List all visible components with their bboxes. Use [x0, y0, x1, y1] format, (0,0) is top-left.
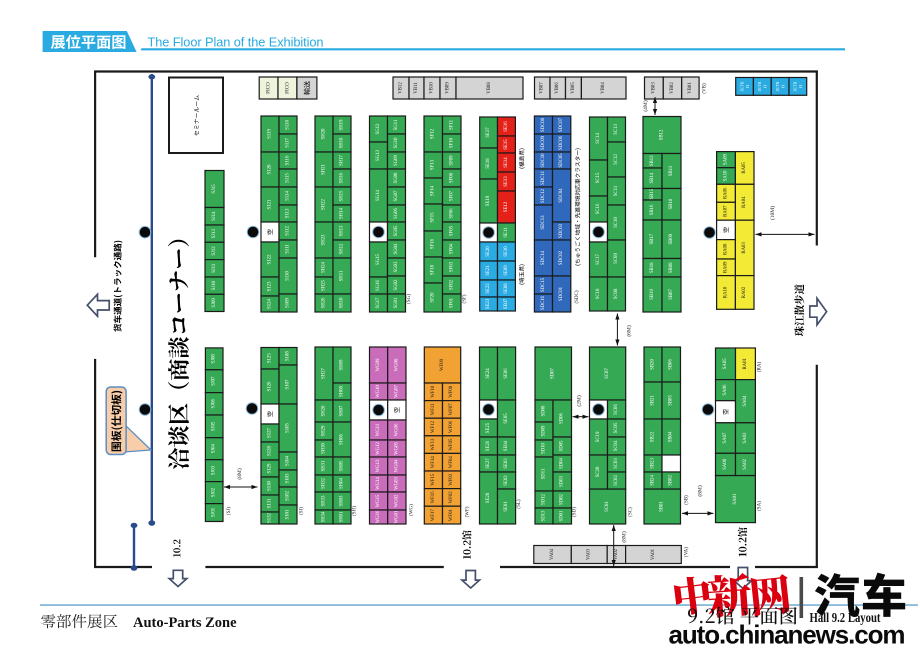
svg-text:VB04: VB04: [601, 82, 606, 94]
svg-text:SF15: SF15: [431, 212, 436, 223]
svg-text:SH29: SH29: [322, 425, 327, 437]
svg-text:VB06: VB06: [555, 82, 560, 94]
svg-text:WF04: WF04: [449, 456, 454, 469]
svg-text:SE12: SE12: [504, 201, 509, 212]
svg-text:SG01: SG01: [394, 297, 399, 309]
svg-text:SH15: SH15: [340, 190, 345, 202]
svg-text:SE20: SE20: [486, 246, 491, 257]
svg-text:SH20: SH20: [322, 128, 327, 140]
svg-text:SH05: SH05: [340, 460, 345, 472]
svg-text:SH31: SH31: [322, 460, 327, 472]
svg-text:RA05: RA05: [742, 162, 747, 174]
svg-text:SDC12: SDC12: [541, 188, 546, 203]
svg-text:S116: S116: [286, 155, 291, 165]
svg-text:(VA): (VA): [685, 547, 690, 557]
svg-text:(8M): (8M): [236, 468, 243, 479]
svg-text:S117: S117: [286, 138, 291, 148]
svg-text:SH21: SH21: [322, 163, 327, 175]
svg-text:SE11: SE11: [504, 227, 509, 238]
svg-text:SF02: SF02: [449, 279, 454, 290]
svg-text:WG13: WG13: [376, 459, 381, 472]
svg-text:SG13: SG13: [376, 149, 381, 161]
svg-text:WF03: WF03: [449, 473, 454, 486]
svg-text:SF13: SF13: [431, 159, 436, 170]
svg-text:Auto-Parts Zone: Auto-Parts Zone: [133, 615, 237, 631]
svg-text:SD01: SD01: [560, 510, 565, 522]
svg-text:SH24: SH24: [322, 261, 327, 273]
svg-text:WG05: WG05: [394, 442, 399, 455]
svg-text:SJ06: SJ06: [212, 399, 217, 409]
svg-text:WF15: WF15: [431, 473, 436, 486]
svg-text:(SDC): (SDC): [575, 290, 580, 303]
svg-text:VB07: VB07: [540, 82, 545, 94]
svg-text:SE09: SE09: [504, 265, 509, 276]
svg-text:SD03: SD03: [560, 475, 565, 487]
svg-text:S108: S108: [286, 351, 291, 361]
svg-text:SE06: SE06: [504, 368, 509, 379]
svg-text:SB17: SB17: [650, 233, 655, 244]
svg-text:SG15: SG15: [376, 253, 381, 265]
svg-text:(SG): (SG): [407, 294, 412, 304]
svg-text:JETR: JETR: [775, 81, 780, 91]
svg-text:S131: S131: [268, 498, 273, 508]
svg-text:WF01: WF01: [449, 509, 454, 522]
svg-text:SD02: SD02: [560, 493, 565, 505]
svg-text:S113: S113: [286, 208, 291, 218]
svg-text:SB15: SB15: [650, 188, 655, 199]
svg-text:WG15: WG15: [376, 494, 381, 507]
svg-text:SB10: SB10: [669, 198, 674, 209]
svg-text:SE28: SE28: [486, 492, 491, 503]
svg-text:S112: S112: [286, 226, 291, 236]
svg-text:(SL): (SL): [517, 499, 522, 509]
svg-text:SJ03: SJ03: [212, 465, 217, 475]
svg-text:SC17: SC17: [596, 254, 601, 265]
svg-text:SE27: SE27: [486, 458, 491, 469]
svg-text:SH27: SH27: [322, 367, 327, 379]
svg-text:SG11: SG11: [394, 119, 399, 130]
svg-text:SC06: SC06: [614, 404, 619, 415]
svg-text:SH26: SH26: [322, 297, 327, 309]
svg-text:S123: S123: [268, 281, 273, 291]
svg-text:SJ14: SJ14: [212, 211, 217, 221]
svg-text:SC01: SC01: [605, 501, 610, 512]
svg-text:VB02: VB02: [670, 82, 675, 94]
svg-text:VB03: VB03: [651, 82, 656, 94]
svg-text:WG01: WG01: [394, 510, 399, 523]
svg-text:SE05: SE05: [504, 413, 509, 424]
svg-text:SJ07: SJ07: [212, 376, 217, 386]
svg-text:SH32: SH32: [322, 477, 327, 489]
svg-text:S132: S132: [268, 512, 273, 522]
svg-text:VA04: VA04: [550, 548, 555, 560]
svg-text:WF14: WF14: [431, 456, 436, 469]
svg-text:SF04: SF04: [449, 243, 454, 254]
svg-text:SE08: SE08: [504, 283, 509, 294]
svg-text:SA07: SA07: [723, 432, 728, 444]
svg-text:SG14: SG14: [376, 189, 381, 201]
svg-text:SF11: SF11: [449, 119, 454, 130]
svg-text:SG06: SG06: [394, 207, 399, 219]
svg-text:VA03: VA03: [587, 548, 592, 560]
svg-text:SB14: SB14: [650, 172, 655, 183]
svg-text:S129: S129: [268, 463, 273, 473]
svg-text:S130: S130: [268, 480, 273, 490]
svg-text:SE21: SE21: [486, 265, 491, 276]
svg-text:SDC01: SDC01: [559, 286, 564, 301]
svg-text:SE02: SE02: [504, 475, 509, 486]
svg-text:SH30: SH30: [322, 442, 327, 454]
svg-text:VB10: VB10: [430, 82, 435, 94]
svg-text:SD12: SD12: [542, 493, 547, 505]
svg-text:(SI): (SI): [300, 507, 305, 515]
svg-text:SA05: SA05: [723, 358, 728, 370]
svg-text:SA06: SA06: [723, 384, 728, 396]
svg-text:SB23: SB23: [651, 458, 656, 469]
svg-text:WG14: WG14: [376, 477, 381, 490]
svg-text:WG06: WG06: [394, 423, 399, 436]
svg-text:S102: S102: [286, 490, 291, 500]
svg-text:SC07: SC07: [605, 368, 610, 379]
svg-text:SDC05: SDC05: [559, 153, 564, 168]
svg-text:(8M): (8M): [621, 531, 628, 542]
svg-text:WF05: WF05: [449, 438, 454, 451]
svg-text:SA04: SA04: [743, 395, 748, 407]
svg-text:SB08: SB08: [669, 262, 674, 273]
svg-text:PICO: PICO: [285, 82, 291, 94]
svg-text:SF08: SF08: [449, 172, 454, 183]
svg-text:SF03: SF03: [449, 261, 454, 272]
svg-text:SA09: SA09: [724, 154, 729, 166]
svg-text:SE13: SE13: [504, 176, 509, 187]
svg-text:(WF): (WF): [466, 506, 471, 517]
svg-text:SG05: SG05: [394, 225, 399, 237]
svg-text:SA01: SA01: [733, 493, 738, 505]
svg-text:VA01: VA01: [651, 548, 656, 560]
svg-text:SC13: SC13: [614, 124, 619, 135]
svg-text:VA02: VA02: [614, 548, 619, 560]
svg-text:S109: S109: [286, 297, 291, 307]
svg-text:WG07: WG07: [394, 385, 399, 398]
svg-text:SC10: SC10: [614, 217, 619, 228]
svg-text:(10M): (10M): [769, 206, 776, 220]
svg-text:SD13: SD13: [542, 510, 547, 522]
svg-text:O: O: [798, 85, 803, 88]
svg-text:WG11: WG11: [376, 423, 381, 436]
svg-text:SE14: SE14: [504, 157, 509, 168]
svg-text:S104: S104: [286, 455, 291, 465]
svg-text:WF11: WF11: [431, 403, 436, 415]
svg-text:SDC16: SDC16: [541, 295, 546, 310]
svg-text:SG02: SG02: [394, 279, 399, 291]
svg-text:O: O: [745, 85, 750, 88]
svg-text:SB06: SB06: [669, 359, 674, 370]
svg-text:SH11: SH11: [340, 270, 345, 281]
svg-text:SH06: SH06: [340, 433, 345, 445]
svg-text:WF08: WF08: [449, 385, 454, 398]
svg-text:WG02: WG02: [394, 494, 399, 507]
svg-text:S126: S126: [268, 381, 273, 391]
svg-text:SC14: SC14: [596, 133, 601, 144]
svg-text:WG08: WG08: [394, 358, 399, 371]
svg-text:SF12: SF12: [431, 128, 436, 139]
svg-text:SH22: SH22: [322, 198, 327, 210]
svg-text:WF16: WF16: [431, 491, 436, 504]
svg-text:O: O: [780, 85, 785, 88]
svg-text:SC12: SC12: [614, 154, 619, 165]
svg-text:SDC06: SDC06: [559, 135, 564, 150]
svg-text:O: O: [763, 85, 768, 88]
svg-text:S124: S124: [268, 298, 273, 308]
svg-text:SH14: SH14: [340, 207, 345, 219]
svg-text:VB12: VB12: [399, 82, 404, 94]
svg-text:WF02: WF02: [449, 491, 454, 504]
svg-text:SF14: SF14: [431, 185, 436, 196]
svg-text:SDC04: SDC04: [559, 188, 564, 203]
svg-text:SH16: SH16: [340, 172, 345, 184]
svg-text:WG03: WG03: [394, 477, 399, 490]
svg-text:SH17: SH17: [340, 154, 345, 166]
svg-text:SH33: SH33: [322, 495, 327, 507]
svg-text:SH25: SH25: [322, 279, 327, 291]
svg-text:SD08: SD08: [542, 405, 547, 417]
svg-text:(SF): (SF): [463, 294, 468, 303]
svg-text:SF16: SF16: [431, 238, 436, 249]
svg-text:SE16: SE16: [504, 121, 509, 132]
svg-text:WF09: WF09: [440, 358, 445, 371]
svg-text:(2M): (2M): [576, 395, 583, 406]
svg-text:WF13: WF13: [431, 438, 436, 451]
svg-text:SD07: SD07: [551, 367, 556, 379]
svg-text:SE24: SE24: [486, 368, 491, 379]
svg-text:SB13: SB13: [650, 155, 655, 166]
svg-text:SB02: SB02: [669, 475, 674, 486]
svg-text:(8M): (8M): [697, 485, 704, 496]
svg-text:SB24: SB24: [651, 475, 656, 486]
svg-text:(6M): (6M): [626, 325, 633, 336]
svg-text:SJ05: SJ05: [212, 421, 217, 431]
svg-text:SC20: SC20: [596, 466, 601, 477]
svg-text:RA04: RA04: [742, 196, 747, 208]
svg-text:SH07: SH07: [340, 405, 345, 417]
svg-text:SDC09: SDC09: [541, 135, 546, 150]
svg-text:SF06: SF06: [449, 208, 454, 219]
svg-text:SE18: SE18: [486, 158, 491, 169]
svg-text:JETR: JETR: [757, 81, 762, 91]
svg-text:SDC10: SDC10: [541, 153, 546, 168]
svg-text:RA10: RA10: [724, 286, 729, 298]
svg-text:SH04: SH04: [340, 477, 345, 489]
svg-text:RA02: RA02: [742, 286, 747, 298]
svg-text:RA06: RA06: [724, 187, 729, 199]
svg-text:S110: S110: [286, 271, 291, 281]
svg-text:SE04: SE04: [504, 440, 509, 451]
svg-text:WF07: WF07: [449, 403, 454, 416]
svg-text:SDC08: SDC08: [541, 117, 546, 132]
svg-text:SJ04: SJ04: [212, 443, 217, 453]
svg-text:SA02: SA02: [743, 458, 748, 470]
svg-text:S103: S103: [286, 473, 291, 483]
svg-text:SF18: SF18: [431, 264, 436, 275]
svg-text:SC09: SC09: [614, 253, 619, 264]
svg-text:WG16: WG16: [376, 510, 381, 523]
svg-text:SDC13: SDC13: [541, 215, 546, 230]
svg-text:SH28: SH28: [322, 405, 327, 417]
svg-text:SG10: SG10: [394, 137, 399, 149]
svg-text:SJ11: SJ11: [212, 263, 217, 273]
svg-text:SG08: SG08: [394, 172, 399, 184]
svg-text:SJ02: SJ02: [212, 487, 217, 497]
svg-text:S120: S120: [268, 164, 273, 174]
svg-text:WF12: WF12: [431, 420, 436, 433]
svg-text:(SB): (SB): [685, 495, 690, 505]
svg-text:(SA): (SA): [758, 501, 763, 511]
svg-text:SF05: SF05: [449, 225, 454, 236]
svg-text:SH10: SH10: [340, 297, 345, 309]
svg-text:SB01: SB01: [660, 501, 665, 512]
svg-text:SB04: SB04: [669, 431, 674, 442]
svg-text:SB07: SB07: [669, 289, 674, 300]
svg-text:SJ15: SJ15: [212, 184, 217, 194]
svg-text:SA10: SA10: [724, 170, 729, 182]
svg-text:WF10: WF10: [431, 385, 436, 398]
svg-text:SJ13: SJ13: [212, 228, 217, 238]
svg-text:SH12: SH12: [340, 243, 345, 255]
svg-text:S122: S122: [268, 254, 273, 264]
svg-text:S111: S111: [286, 244, 291, 254]
svg-text:SB21: SB21: [651, 395, 656, 406]
svg-text:SB18: SB18: [650, 262, 655, 273]
svg-text:SF09: SF09: [449, 155, 454, 166]
svg-text:VB05: VB05: [571, 82, 576, 94]
svg-text:SE03: SE03: [504, 458, 509, 469]
svg-text:(RA): (RA): [758, 362, 763, 373]
svg-text:SD04: SD04: [560, 457, 565, 469]
svg-text:SG07: SG07: [394, 190, 399, 202]
svg-text:S107: S107: [286, 379, 291, 389]
svg-text:SC02: SC02: [614, 475, 619, 486]
svg-text:SDC14: SDC14: [541, 250, 546, 265]
svg-text:SD10: SD10: [542, 442, 547, 454]
svg-text:SE15: SE15: [504, 139, 509, 150]
svg-text:SE25: SE25: [486, 422, 491, 433]
svg-text:S125: S125: [268, 353, 273, 363]
svg-text:SDC11: SDC11: [541, 170, 546, 185]
svg-text:SJ08: SJ08: [212, 354, 217, 364]
svg-text:(SC): (SC): [629, 507, 634, 517]
svg-text:SC08: SC08: [614, 288, 619, 299]
svg-text:S121: S121: [268, 199, 273, 209]
svg-text:RA09: RA09: [724, 261, 729, 273]
svg-text:SB11: SB11: [669, 165, 674, 176]
svg-text:SH23: SH23: [322, 234, 327, 246]
svg-text:WF17: WF17: [431, 509, 436, 522]
svg-text:S118: S118: [286, 120, 291, 130]
svg-text:S114: S114: [286, 191, 291, 201]
svg-text:S128: S128: [268, 445, 273, 455]
svg-text:S115: S115: [286, 173, 291, 183]
svg-text:RA03: RA03: [742, 242, 747, 254]
svg-text:WG09: WG09: [376, 358, 381, 371]
svg-text:SDC02: SDC02: [559, 250, 564, 265]
svg-text:S105: S105: [286, 422, 291, 432]
svg-text:SB09: SB09: [669, 233, 674, 244]
svg-text:RA08: RA08: [724, 243, 729, 255]
svg-text:SD06: SD06: [560, 412, 565, 424]
svg-text:S127: S127: [268, 427, 273, 437]
svg-text:SH03: SH03: [340, 495, 345, 507]
svg-text:SC16: SC16: [596, 203, 601, 214]
svg-text:SB16: SB16: [650, 204, 655, 215]
svg-text:The Floor Plan of the Exhibiti: The Floor Plan of the Exhibition: [148, 35, 324, 50]
svg-text:SH01: SH01: [340, 511, 345, 523]
svg-text:SF20: SF20: [431, 292, 436, 303]
svg-text:SF10: SF10: [449, 137, 454, 148]
svg-text:VB01: VB01: [688, 82, 693, 94]
svg-text:(4M): (4M): [642, 100, 649, 111]
svg-text:(WG): (WG): [410, 504, 415, 516]
svg-text:JETR: JETR: [793, 81, 798, 91]
svg-text:SC03: SC03: [614, 458, 619, 469]
svg-text:SB05: SB05: [669, 395, 674, 406]
svg-text:VB11: VB11: [414, 82, 419, 94]
svg-text:SA08: SA08: [723, 458, 728, 470]
svg-text:SJ10: SJ10: [212, 280, 217, 290]
svg-text:SD05: SD05: [560, 440, 565, 452]
svg-text:SG16: SG16: [376, 279, 381, 291]
svg-text:JETR: JETR: [739, 81, 744, 91]
svg-text:SE22: SE22: [486, 283, 491, 294]
svg-text:SH34: SH34: [322, 511, 327, 523]
svg-text:SE17: SE17: [486, 127, 491, 138]
svg-text:SE07: SE07: [504, 298, 509, 309]
svg-text:SC15: SC15: [596, 172, 601, 183]
svg-text:SG12: SG12: [376, 123, 381, 135]
svg-text:S101: S101: [286, 509, 291, 519]
svg-text:SC04: SC04: [614, 440, 619, 451]
svg-text:SC11: SC11: [614, 185, 619, 196]
svg-text:SC18: SC18: [596, 288, 601, 299]
svg-text:RA07: RA07: [724, 205, 729, 217]
svg-text:SC19: SC19: [596, 431, 601, 442]
svg-text:SJ12: SJ12: [212, 246, 217, 256]
svg-text:SD11: SD11: [542, 468, 547, 479]
svg-text:SE01: SE01: [504, 501, 509, 512]
svg-text:SB19: SB19: [650, 289, 655, 300]
svg-text:SJ01: SJ01: [212, 507, 217, 517]
svg-text:SDC07: SDC07: [559, 117, 564, 132]
svg-text:WG12: WG12: [376, 442, 381, 455]
svg-text:auto.chinanews.com: auto.chinanews.com: [669, 620, 906, 650]
svg-text:WF06: WF06: [449, 420, 454, 433]
svg-text:SF01: SF01: [449, 297, 454, 308]
svg-text:PICO: PICO: [266, 82, 272, 94]
svg-text:SB20: SB20: [651, 359, 656, 370]
svg-text:SE19: SE19: [486, 195, 491, 206]
svg-text:SB12: SB12: [660, 129, 665, 140]
svg-text:SB22: SB22: [651, 431, 656, 442]
svg-text:SG09: SG09: [394, 154, 399, 166]
svg-text:(SJ): (SJ): [227, 507, 232, 515]
svg-text:SG03: SG03: [394, 261, 399, 273]
svg-text:SG04: SG04: [394, 243, 399, 255]
svg-text:(SD): (SD): [573, 507, 578, 517]
svg-text:SJ09: SJ09: [212, 298, 217, 308]
svg-text:VB09: VB09: [446, 82, 451, 94]
svg-text:RA01: RA01: [743, 357, 748, 369]
svg-text:S119: S119: [268, 129, 273, 139]
svg-text:SH08: SH08: [340, 385, 345, 397]
